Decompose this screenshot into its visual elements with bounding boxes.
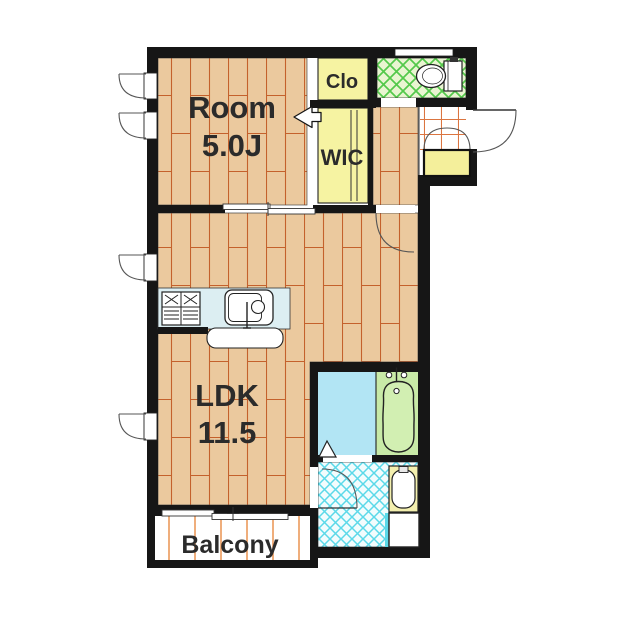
washbasin-icon xyxy=(389,466,418,512)
wall-bath-top xyxy=(310,362,430,372)
entrance-door xyxy=(473,110,516,152)
wall-room-ldk-right xyxy=(313,205,376,213)
shoe-cabinet xyxy=(424,150,470,176)
gas-stove-icon xyxy=(162,292,200,325)
wall-clo-wic-divider xyxy=(310,100,376,108)
ldk-name-label: LDK xyxy=(195,378,259,413)
wall-right-top xyxy=(466,47,477,110)
wic-label: WIC xyxy=(321,145,364,170)
toilet-door-opening xyxy=(381,98,416,107)
toilet-window xyxy=(395,49,453,56)
room-name-label: Room xyxy=(188,90,276,125)
wall-balcony-bottom xyxy=(147,560,318,568)
wall-bottom-right xyxy=(310,547,430,558)
wall-wic-right xyxy=(368,107,373,205)
wall-bath-left xyxy=(310,362,318,467)
floor-plan-canvas: Room 5.0J Clo WIC LDK 11.5 Balcony xyxy=(0,0,640,640)
washroom-door-opening xyxy=(310,467,318,508)
window-ldk-2 xyxy=(144,413,157,440)
wall-balcony-right xyxy=(310,515,318,568)
window-room-1 xyxy=(144,73,157,99)
room-size-label: 5.0J xyxy=(202,128,262,163)
counter-table xyxy=(207,328,283,348)
kitchen-sink-icon xyxy=(225,290,273,328)
wall-room-ldk-left xyxy=(147,205,225,213)
washing-machine-icon xyxy=(385,513,419,547)
ldk-door-opening xyxy=(376,205,415,213)
ldk-size-label: 11.5 xyxy=(198,415,257,450)
window-room-2 xyxy=(144,112,157,139)
floor-plan-svg: Room 5.0J Clo WIC LDK 11.5 Balcony xyxy=(0,0,640,640)
hallway-floor xyxy=(373,107,418,205)
balcony-label: Balcony xyxy=(181,531,278,559)
window-ldk-1 xyxy=(144,254,157,281)
closet-label: Clo xyxy=(326,71,358,93)
